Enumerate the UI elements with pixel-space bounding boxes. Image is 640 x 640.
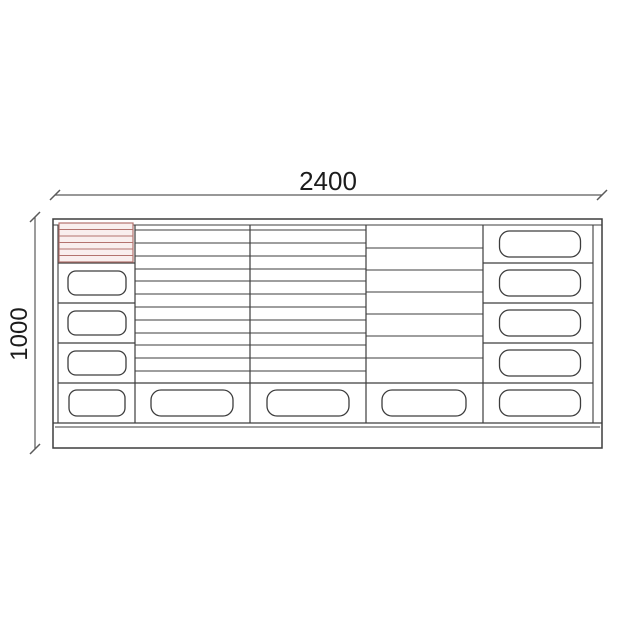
drawer-handles xyxy=(68,231,581,416)
dim-height-label: 1000 xyxy=(6,307,33,360)
drawing-canvas: 2400 1000 xyxy=(0,0,640,640)
cabinet-elevation-drawing: 2400 1000 xyxy=(0,0,640,640)
shelf-lines xyxy=(135,230,483,371)
dimension-width: 2400 xyxy=(50,166,607,200)
dim-width-label: 2400 xyxy=(299,166,357,196)
hatch-panel xyxy=(59,223,133,262)
dimension-height: 1000 xyxy=(6,212,40,454)
